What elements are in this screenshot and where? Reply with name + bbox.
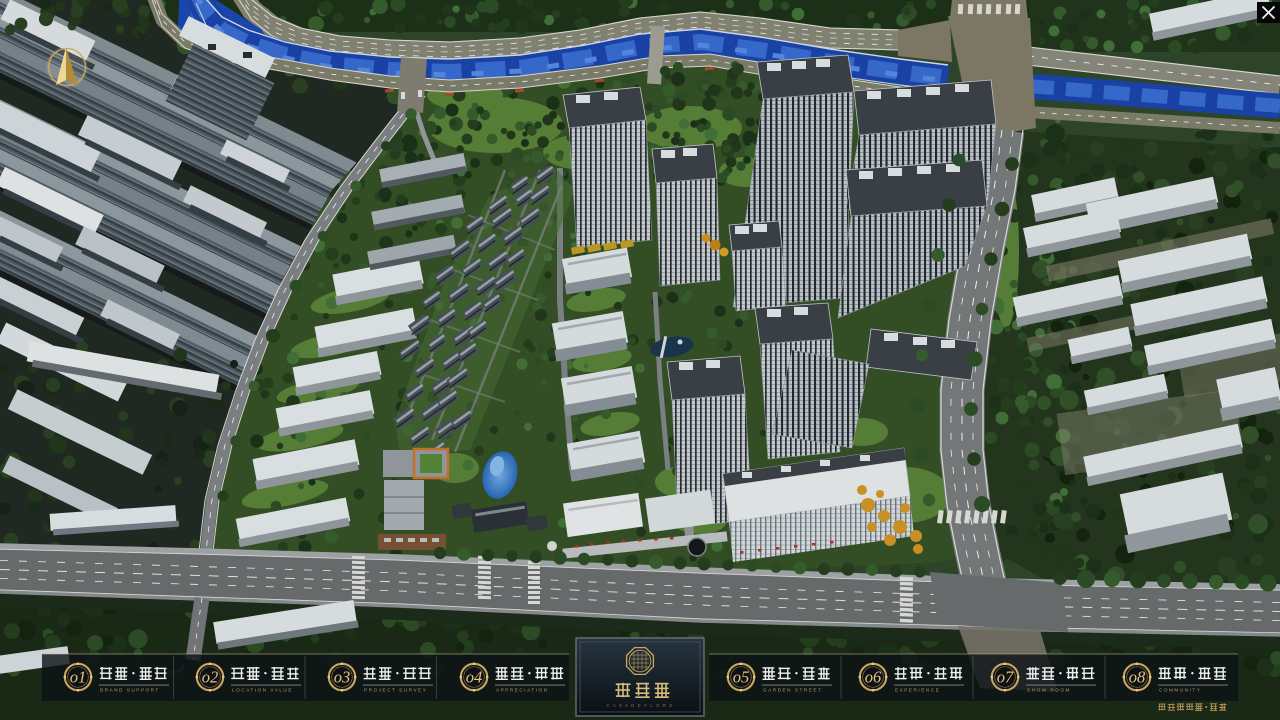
svg-text:GARDEN STREET: GARDEN STREET [763,688,822,693]
svg-text:o1: o1 [70,668,87,687]
svg-text:C A S A D E F L O R E: C A S A D E F L O R E [607,703,674,708]
svg-text:o8: o8 [1129,668,1146,687]
svg-text:o5: o5 [733,668,750,687]
svg-text:COMMUNITY: COMMUNITY [1159,688,1201,693]
svg-text:o6: o6 [865,668,882,687]
svg-text:PROJECT SURVEY: PROJECT SURVEY [364,688,427,693]
svg-text:LOCATION VALUE: LOCATION VALUE [232,688,293,693]
svg-text:APPRECIATION: APPRECIATION [496,688,549,693]
svg-text:o7: o7 [997,668,1014,687]
svg-text:SHOW ROOM: SHOW ROOM [1027,688,1071,693]
svg-text:o3: o3 [334,668,351,687]
svg-text:EXPERIENCE: EXPERIENCE [895,688,940,693]
svg-text:BRAND SUPPORT: BRAND SUPPORT [100,688,160,693]
svg-text:o2: o2 [202,668,219,687]
svg-text:o4: o4 [466,668,483,687]
